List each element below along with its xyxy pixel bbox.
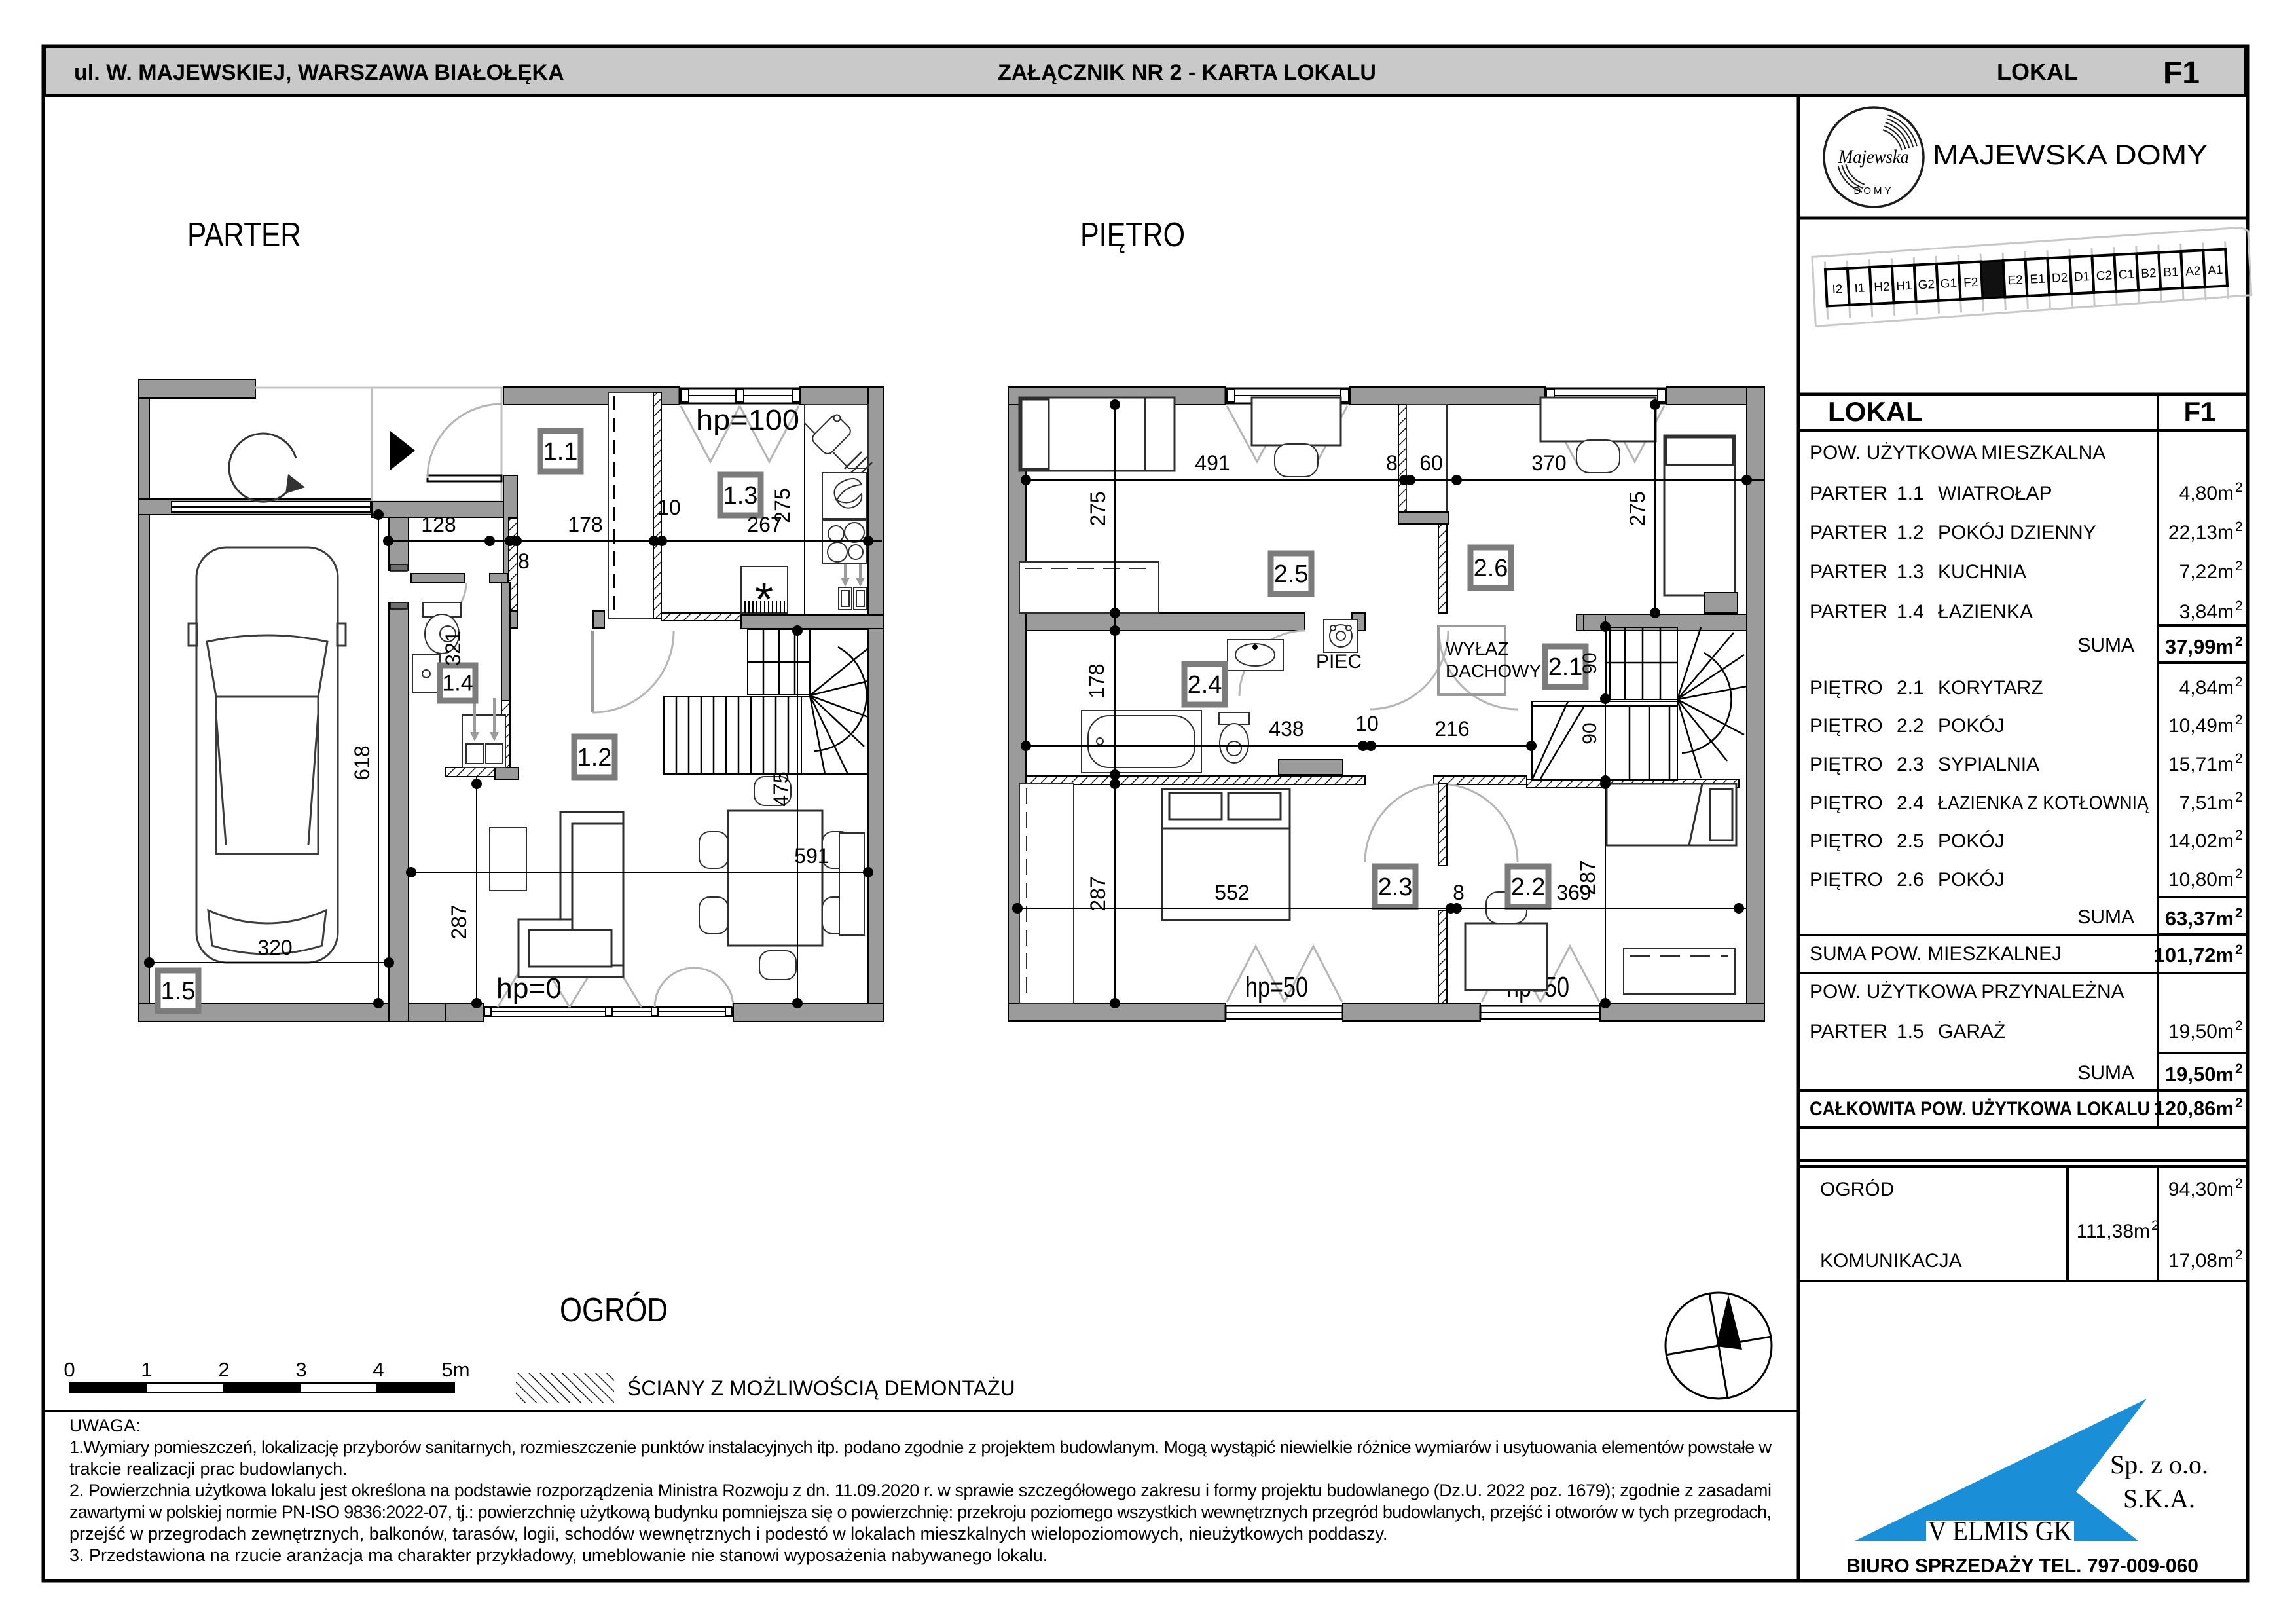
svg-text:60: 60 xyxy=(1419,451,1443,475)
svg-text:POKÓJ: POKÓJ xyxy=(1938,830,2005,852)
svg-text:PARTER: PARTER xyxy=(1810,601,1887,623)
svg-text:PIĘTRO: PIĘTRO xyxy=(1810,792,1883,814)
svg-text:2.4: 2.4 xyxy=(1188,671,1222,699)
svg-text:8: 8 xyxy=(1453,881,1465,904)
svg-text:14,02m: 14,02m xyxy=(2168,830,2234,852)
svg-text:438: 438 xyxy=(1269,717,1303,741)
svg-text:2.4: 2.4 xyxy=(1897,792,1924,814)
svg-text:POKÓJ: POKÓJ xyxy=(1938,869,2005,891)
svg-text:E2: E2 xyxy=(2007,273,2023,287)
svg-text:2: 2 xyxy=(2235,1061,2243,1077)
svg-text:1.1: 1.1 xyxy=(1897,483,1924,504)
svg-text:WYŁAZ: WYŁAZ xyxy=(1446,638,1508,659)
svg-text:POW. UŻYTKOWA MIESZKALNA: POW. UŻYTKOWA MIESZKALNA xyxy=(1810,442,2105,464)
svg-text:UWAGA:: UWAGA: xyxy=(69,1416,141,1435)
svg-text:3,84m: 3,84m xyxy=(2179,601,2234,623)
svg-text:WIATROŁAP: WIATROŁAP xyxy=(1938,483,2052,504)
svg-text:1.Wymiary pomieszczeń, lokaliz: 1.Wymiary pomieszczeń, lokalizację przyb… xyxy=(69,1437,1772,1457)
svg-text:37,99m: 37,99m xyxy=(2165,635,2234,658)
svg-text:370: 370 xyxy=(1531,451,1566,475)
svg-text:275: 275 xyxy=(1626,491,1649,526)
svg-text:SUMA POW. MIESZKALNEJ: SUMA POW. MIESZKALNEJ xyxy=(1810,943,2062,965)
svg-text:S.K.A.: S.K.A. xyxy=(2123,1484,2195,1513)
svg-text:2: 2 xyxy=(2235,1018,2243,1033)
svg-text:2: 2 xyxy=(2235,866,2243,881)
svg-text:2: 2 xyxy=(2235,942,2243,957)
svg-text:4,80m: 4,80m xyxy=(2179,483,2234,504)
svg-text:2.6: 2.6 xyxy=(1474,555,1508,582)
svg-text:SUMA: SUMA xyxy=(2077,906,2134,928)
svg-text:101,72m: 101,72m xyxy=(2154,944,2234,967)
svg-text:2: 2 xyxy=(2235,906,2243,921)
svg-text:2: 2 xyxy=(2235,519,2243,534)
svg-text:552: 552 xyxy=(1214,881,1249,904)
svg-text:7,22m: 7,22m xyxy=(2179,561,2234,583)
svg-text:178: 178 xyxy=(568,513,602,536)
svg-text:1.1: 1.1 xyxy=(543,438,578,466)
svg-text:1.3: 1.3 xyxy=(1897,561,1924,583)
svg-text:2: 2 xyxy=(2235,634,2243,649)
svg-text:zawartymi w polskiej normie PN: zawartymi w polskiej normie PN-ISO 9836:… xyxy=(69,1502,1772,1522)
svg-text:2: 2 xyxy=(218,1358,229,1381)
svg-text:DOMY: DOMY xyxy=(1854,185,1894,196)
svg-text:A1: A1 xyxy=(2208,263,2223,278)
svg-text:POW. UŻYTKOWA PRZYNALEŻNA: POW. UŻYTKOWA PRZYNALEŻNA xyxy=(1810,981,2124,1003)
svg-text:19,50m: 19,50m xyxy=(2168,1021,2234,1043)
svg-text:2.1: 2.1 xyxy=(1897,677,1924,699)
svg-text:111,38m: 111,38m xyxy=(2077,1221,2150,1242)
svg-text:PARTER: PARTER xyxy=(1810,522,1887,544)
svg-text:8: 8 xyxy=(1386,451,1398,475)
svg-text:KOMUNIKACJA: KOMUNIKACJA xyxy=(1820,1250,1962,1272)
svg-text:2.1: 2.1 xyxy=(1548,654,1583,681)
svg-text:*: * xyxy=(755,574,773,626)
svg-text:1.2: 1.2 xyxy=(1897,522,1924,544)
svg-text:C1: C1 xyxy=(2118,268,2134,282)
svg-text:LOKAL: LOKAL xyxy=(1997,58,2078,85)
svg-text:2: 2 xyxy=(2235,790,2243,805)
svg-text:275: 275 xyxy=(1086,491,1110,526)
svg-text:1: 1 xyxy=(141,1358,152,1381)
svg-text:1.3: 1.3 xyxy=(723,482,758,509)
svg-text:2.5: 2.5 xyxy=(1897,830,1924,852)
svg-text:V ELMIS GK: V ELMIS GK xyxy=(1928,1517,2072,1547)
svg-text:hp=50: hp=50 xyxy=(1245,971,1308,1003)
svg-text:KUCHNIA: KUCHNIA xyxy=(1938,561,2026,583)
svg-text:PARTER: PARTER xyxy=(1810,483,1887,504)
svg-text:PIĘTRO: PIĘTRO xyxy=(1080,216,1185,254)
svg-text:POKÓJ DZIENNY: POKÓJ DZIENNY xyxy=(1938,522,2096,544)
svg-text:PIĘTRO: PIĘTRO xyxy=(1810,830,1883,852)
svg-text:5m: 5m xyxy=(441,1358,469,1381)
svg-text:10,80m: 10,80m xyxy=(2168,869,2234,891)
svg-text:KORYTARZ: KORYTARZ xyxy=(1938,677,2043,699)
svg-text:2: 2 xyxy=(2235,480,2243,495)
svg-text:Sp. z o.o.: Sp. z o.o. xyxy=(2110,1450,2208,1479)
svg-text:178: 178 xyxy=(1085,663,1108,698)
svg-text:2.3: 2.3 xyxy=(1378,874,1413,901)
svg-text:320: 320 xyxy=(257,936,292,959)
svg-text:3. Przedstawiona na rzucie ara: 3. Przedstawiona na rzucie aranżacja ma … xyxy=(69,1545,1048,1565)
svg-text:2.2: 2.2 xyxy=(1897,715,1924,737)
svg-text:2: 2 xyxy=(2235,1247,2243,1263)
svg-text:0: 0 xyxy=(64,1358,75,1381)
svg-text:CAŁKOWITA POW. UŻYTKOWA LOKALU: CAŁKOWITA POW. UŻYTKOWA LOKALU xyxy=(1810,1098,2150,1120)
svg-text:E1: E1 xyxy=(2030,272,2045,287)
svg-text:MAJEWSKA DOMY: MAJEWSKA DOMY xyxy=(1933,139,2208,171)
svg-text:PIĘTRO: PIĘTRO xyxy=(1810,754,1883,775)
svg-text:2.2: 2.2 xyxy=(1511,874,1546,901)
svg-text:D2: D2 xyxy=(2051,271,2068,286)
svg-text:2.5: 2.5 xyxy=(1274,561,1309,588)
svg-text:15,71m: 15,71m xyxy=(2168,754,2234,775)
svg-text:2.6: 2.6 xyxy=(1897,869,1924,891)
svg-text:SYPIALNIA: SYPIALNIA xyxy=(1938,754,2039,775)
svg-text:ŁAZIENKA: ŁAZIENKA xyxy=(1938,601,2033,623)
svg-text:128: 128 xyxy=(421,513,456,536)
svg-text:I1: I1 xyxy=(1854,282,1865,296)
svg-text:PARTER: PARTER xyxy=(1810,1021,1887,1043)
svg-text:H2: H2 xyxy=(1874,280,1890,295)
svg-text:D1: D1 xyxy=(2073,270,2090,284)
svg-text:10,49m: 10,49m xyxy=(2168,715,2234,737)
svg-text:OGRÓD: OGRÓD xyxy=(560,1291,668,1329)
svg-text:287: 287 xyxy=(1086,876,1110,911)
svg-text:ŁAZIENKA Z KOTŁOWNIĄ: ŁAZIENKA Z KOTŁOWNIĄ xyxy=(1938,792,2149,814)
svg-text:SUMA: SUMA xyxy=(2077,635,2134,656)
svg-text:F2: F2 xyxy=(1963,276,1978,290)
svg-text:591: 591 xyxy=(794,844,829,868)
svg-text:19,50m: 19,50m xyxy=(2165,1063,2234,1086)
svg-text:287: 287 xyxy=(447,904,471,939)
svg-text:ŚCIANY Z MOŻLIWOŚCIĄ DEMONTAŻU: ŚCIANY Z MOŻLIWOŚCIĄ DEMONTAŻU xyxy=(627,1376,1015,1400)
svg-text:63,37m: 63,37m xyxy=(2165,907,2234,930)
svg-text:H1: H1 xyxy=(1896,279,1912,293)
svg-text:369: 369 xyxy=(1556,881,1591,904)
svg-text:A2: A2 xyxy=(2185,265,2201,279)
svg-text:10: 10 xyxy=(657,496,681,519)
svg-text:275: 275 xyxy=(771,488,794,523)
svg-text:491: 491 xyxy=(1195,451,1230,475)
svg-text:2: 2 xyxy=(2235,1176,2243,1191)
svg-text:PIĘTRO: PIĘTRO xyxy=(1810,715,1883,737)
svg-text:C2: C2 xyxy=(2096,268,2112,283)
svg-text:hp=0: hp=0 xyxy=(496,972,562,1005)
svg-text:G1: G1 xyxy=(1940,276,1957,291)
svg-text:2: 2 xyxy=(2235,674,2243,690)
svg-text:GARAŻ: GARAŻ xyxy=(1938,1021,2005,1043)
svg-text:DACHOWY: DACHOWY xyxy=(1446,661,1542,681)
svg-text:4,84m: 4,84m xyxy=(2179,677,2234,699)
svg-text:216: 216 xyxy=(1434,717,1469,741)
svg-text:PARTER: PARTER xyxy=(1810,561,1887,583)
svg-text:F1: F1 xyxy=(2163,56,2200,90)
svg-text:120,86m: 120,86m xyxy=(2154,1097,2234,1120)
svg-text:hp=100: hp=100 xyxy=(696,404,799,436)
svg-text:trakcie realizacji prac budowl: trakcie realizacji prac budowlanych. xyxy=(69,1459,348,1479)
svg-text:2: 2 xyxy=(2151,1218,2159,1233)
svg-text:PIEC: PIEC xyxy=(1316,651,1362,673)
svg-text:1.2: 1.2 xyxy=(577,744,612,771)
svg-text:2: 2 xyxy=(2235,751,2243,766)
svg-text:ul. W. MAJEWSKIEJ, WARSZAWA BI: ul. W. MAJEWSKIEJ, WARSZAWA BIAŁOŁĘKA xyxy=(74,60,564,85)
svg-text:17,08m: 17,08m xyxy=(2168,1250,2234,1272)
svg-text:I2: I2 xyxy=(1832,282,1843,297)
svg-text:94,30m: 94,30m xyxy=(2168,1179,2234,1200)
svg-text:B1: B1 xyxy=(2163,265,2179,280)
svg-text:BIURO SPRZEDAŻY TEL. 797-009-0: BIURO SPRZEDAŻY TEL. 797-009-060 xyxy=(1846,1555,2198,1577)
svg-text:2. Powierzchnia użytkowa lokal: 2. Powierzchnia użytkowa lokalu jest okr… xyxy=(69,1481,1772,1500)
svg-text:8: 8 xyxy=(518,549,530,573)
svg-text:Majewska: Majewska xyxy=(1838,146,1909,168)
svg-text:2: 2 xyxy=(2235,828,2243,843)
svg-text:PIĘTRO: PIĘTRO xyxy=(1810,677,1883,699)
svg-text:2: 2 xyxy=(2235,559,2243,574)
svg-text:PARTER: PARTER xyxy=(187,216,301,254)
svg-text:B2: B2 xyxy=(2141,267,2157,281)
svg-text:G2: G2 xyxy=(1918,278,1935,292)
svg-text:2.3: 2.3 xyxy=(1897,754,1924,775)
svg-text:2: 2 xyxy=(2235,712,2243,728)
svg-text:7,51m: 7,51m xyxy=(2179,792,2234,814)
svg-text:przejść w przegrodach zewnętrz: przejść w przegrodach zewnętrznych, balk… xyxy=(69,1524,1387,1543)
svg-text:90: 90 xyxy=(1579,652,1601,674)
svg-text:618: 618 xyxy=(350,745,374,780)
svg-text:2: 2 xyxy=(2235,1096,2243,1111)
svg-text:321: 321 xyxy=(441,631,465,665)
svg-text:OGRÓD: OGRÓD xyxy=(1820,1179,1894,1200)
svg-text:90: 90 xyxy=(1579,722,1601,744)
svg-text:10: 10 xyxy=(1355,712,1379,735)
svg-text:PIĘTRO: PIĘTRO xyxy=(1810,869,1883,891)
svg-text:3: 3 xyxy=(295,1358,306,1381)
svg-text:POKÓJ: POKÓJ xyxy=(1938,715,2005,737)
svg-text:475: 475 xyxy=(769,771,793,806)
svg-text:ZAŁĄCZNIK NR 2 - KARTA LOKALU: ZAŁĄCZNIK NR 2 - KARTA LOKALU xyxy=(998,60,1376,85)
svg-text:1.4: 1.4 xyxy=(1897,601,1924,623)
svg-text:LOKAL: LOKAL xyxy=(1828,396,1923,427)
svg-text:1.5: 1.5 xyxy=(1897,1021,1924,1043)
svg-text:2: 2 xyxy=(2235,599,2243,614)
svg-text:22,13m: 22,13m xyxy=(2168,522,2234,544)
svg-text:4: 4 xyxy=(373,1358,384,1381)
svg-text:1.4: 1.4 xyxy=(442,671,473,696)
svg-text:SUMA: SUMA xyxy=(2077,1062,2134,1084)
svg-text:1.5: 1.5 xyxy=(161,978,196,1005)
svg-text:F1: F1 xyxy=(2183,396,2215,427)
